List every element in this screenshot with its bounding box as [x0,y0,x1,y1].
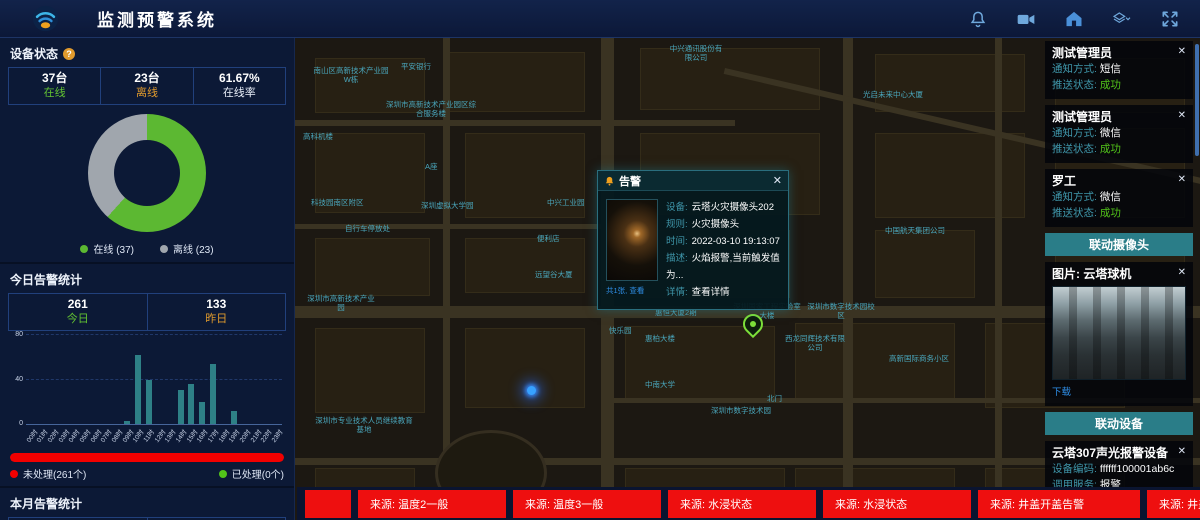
alarm-snapshot-image[interactable] [606,199,658,281]
legend-processed: 已处理(0个) [219,466,284,481]
bar-slot: 20时 [239,335,250,424]
scrollbar-thumb[interactable] [1195,44,1199,156]
hour-bar [188,384,194,424]
hour-bar [124,421,130,424]
map-label: A座 [425,162,438,171]
alarm-popup: 告警 ✕ 共1张, 查看 设备:云塔火灾摄像头202 规则:火灾摄像头 时间:2… [597,170,789,310]
video-camera-icon[interactable] [1016,8,1038,30]
alarm-source-tile[interactable]: 来源: 温度3一般 [513,490,661,518]
map-label: 远望谷大厦 [535,270,573,279]
map-label: 深圳虚拟大学园 [421,201,474,210]
alarm-source-tile[interactable]: 来源: 水浸状态 [668,490,816,518]
bar-slot: 23时 [271,335,282,424]
month-alarms-header: 本月告警统计 [8,493,286,517]
map-label: 深圳市专业技术人员继续教育基地 [315,416,413,434]
ytick-80: 80 [10,331,23,338]
close-icon[interactable]: ✕ [1178,110,1186,121]
map-label: 中国航天集团公司 [885,226,945,235]
bar-slot: 11时 [143,335,154,424]
notification-recipient: 测试管理员 [1052,110,1174,125]
bar-slot: 08时 [111,335,122,424]
today-alarms-header: 今日告警统计 [8,269,286,293]
map-block [315,328,425,413]
map-label: 深圳市数字技术园 [711,406,771,415]
alarm-snapshot-wrap: 共1张, 查看 [606,199,658,301]
notification-card: 罗工✕ 通知方式:微信 推送状态:成功 [1045,169,1193,227]
header: 监测预警系统 [0,0,1200,38]
map-road [295,224,605,229]
map-block [315,238,430,296]
bar-slot: 05时 [79,335,90,424]
map-block [465,238,585,293]
bar-slot: 09时 [122,335,133,424]
map-label: 深圳市数字技术园校区 [807,302,875,320]
layers-icon[interactable] [1112,8,1134,30]
today-alarms-stats: 261 今日 133 昨日 [8,293,286,331]
linked-devices-header[interactable]: 联动设备 [1045,412,1193,435]
map-block [875,230,975,298]
bar-slot: 06时 [90,335,101,424]
bar-slot: 03时 [58,335,69,424]
bar-slot: 10时 [133,335,144,424]
map-label: 平安银行 [401,62,431,71]
left-panel: 设备状态 ? 37台 在线 23台 离线 61.67% 在线率 [0,38,295,520]
month-alarms-title: 本月告警统计 [10,495,82,512]
device-code-row: 设备编码:ffffff100001ab6c [1052,461,1186,477]
legend-unprocessed: 未处理(261个) [10,466,86,481]
map-block [875,133,1025,218]
map-label: 北门 [767,394,782,403]
legend-online: 在线 (37) [80,241,134,256]
alarm-popup-body: 共1张, 查看 设备:云塔火灾摄像头202 规则:火灾摄像头 时间:2022-0… [598,191,788,309]
camera-card: 图片: 云塔球机✕ 下载 [1045,262,1193,406]
ytick-40: 40 [10,376,23,383]
map-label: 科技园南区附区 [311,198,364,207]
alarm-source-tile[interactable]: 来源: 水浸状态 [823,490,971,518]
linked-cameras-header[interactable]: 联动摄像头 [1045,233,1193,256]
bar-slot: 21时 [250,335,261,424]
alarm-popup-title: 告警 [619,173,769,189]
alarm-ticker: 来源: 温度2一般来源: 温度3一般来源: 水浸状态来源: 水浸状态来源: 井盖… [297,487,1200,520]
hour-bar [231,411,237,424]
map-label: 便利店 [537,234,560,243]
legend-dot-offline [160,245,168,253]
device-status-title: 设备状态 [10,45,58,62]
progress-legend: 未处理(261个) 已处理(0个) [10,466,284,481]
alarm-source-tile[interactable]: 来源: 温度2一般 [358,490,506,518]
bar-slot: 14时 [175,335,186,424]
device-donut [88,114,206,232]
notification-recipient: 罗工 [1052,174,1174,189]
alarm-popup-fields: 设备:云塔火灾摄像头202 规则:火灾摄像头 时间:2022-03-10 19:… [666,199,782,301]
map-label: 深圳市高新技术产业园区综合服务楼 [385,100,477,118]
month-alarms-section: 本月告警统计 763 1146 [0,486,294,520]
hour-bar [146,380,152,425]
notification-card: 测试管理员✕ 通知方式:短信 推送状态:成功 [1045,41,1193,99]
stat-today: 261 今日 [9,294,147,330]
notification-status-row: 推送状态:成功 [1052,205,1186,221]
stat-online-rate: 61.67% 在线率 [193,68,285,104]
stat-offline: 23台 离线 [100,68,192,104]
map-label: 自行车停放处 [345,224,390,233]
map-label: 高新国际商务小区 [889,354,949,363]
alarm-field-rule: 规则:火灾摄像头 [666,216,782,233]
app: 监测预警系统 [0,0,1200,520]
alarm-field-desc: 描述:火焰报警,当前触发值为... [666,250,782,284]
camera-snapshot-image[interactable] [1052,286,1186,380]
bar-slot: 04时 [69,335,80,424]
map-label: 中南大学 [645,380,675,389]
bar-slot: 22时 [261,335,272,424]
fullscreen-icon[interactable] [1160,8,1182,30]
map-block [465,328,585,408]
map-road [843,38,853,520]
notification-method-row: 通知方式:微信 [1052,189,1186,205]
alarm-field-time: 时间:2022-03-10 19:13:07 [666,233,782,250]
alarm-popup-close-icon[interactable]: ✕ [773,174,782,187]
hour-bar [135,355,141,424]
hour-bar [210,364,216,424]
close-icon[interactable]: ✕ [1178,446,1186,457]
bar-slot: 07时 [101,335,112,424]
map-block [875,54,1025,112]
device-status-section: 设备状态 ? 37台 在线 23台 离线 61.67% 在线率 [0,38,294,262]
help-icon[interactable]: ? [63,48,75,60]
map-label: 光启未来中心大厦 [863,90,923,99]
bar-slot: 19时 [229,335,240,424]
bar-slot: 16时 [197,335,208,424]
device-card-title: 云塔307声光报警设备 [1052,446,1174,461]
map-label: 中兴通讯股份有限公司 [667,44,725,62]
notification-recipient: 测试管理员 [1052,46,1174,61]
hour-bar-plot: 0 40 80 00时01时02时03时04时05时06时07时08时09时10… [26,335,282,425]
alarm-popup-header: 告警 ✕ [598,171,788,191]
alarm-field-device: 设备:云塔火灾摄像头202 [666,199,782,216]
device-status-header: 设备状态 ? [8,43,286,67]
map-device-dot[interactable] [527,386,536,395]
bar-slot: 00时 [26,335,37,424]
legend-dot-processed [219,470,227,478]
map-label: 中兴工业园 [547,198,585,207]
bar-slot: 17时 [207,335,218,424]
page-title: 监测预警系统 [97,6,217,31]
close-icon[interactable]: ✕ [1178,174,1186,185]
bar-slot: 15时 [186,335,197,424]
map-label: 快乐园 [609,326,632,335]
notification-status-row: 推送状态:成功 [1052,77,1186,93]
alarm-source-tile[interactable]: 来源: 井盖开盖告警 [978,490,1140,518]
download-link[interactable]: 下载 [1052,384,1071,398]
bar-slot: 13时 [165,335,176,424]
bar-slot: 02时 [47,335,58,424]
hour-bar [199,402,205,424]
notification-method-row: 通知方式:短信 [1052,61,1186,77]
view-details-link[interactable]: 查看详情 [692,287,730,298]
today-alarms-section: 今日告警统计 261 今日 133 昨日 0 40 80 [0,262,294,486]
alarm-source-tile[interactable]: 来源: 井盖开盖告警 [1147,490,1200,518]
map-label: 南山区高新技术产业园W栋 [311,66,391,84]
map-road [995,38,1002,520]
bar-slot: 01时 [37,335,48,424]
unprocessed-bar [10,453,284,462]
legend-dot-unprocessed [10,470,18,478]
alarm-snapshot-actions[interactable]: 共1张, 查看 [606,285,658,296]
alarm-bell-icon [604,175,615,187]
close-icon[interactable]: ✕ [1178,267,1186,278]
camera-card-title: 图片: 云塔球机 [1052,267,1174,282]
bell-icon[interactable] [968,8,990,30]
map-road [295,120,735,126]
device-donut-chart [8,109,286,237]
notification-card: 测试管理员✕ 通知方式:微信 推送状态:成功 [1045,105,1193,163]
bar-slot: 18时 [218,335,229,424]
close-icon[interactable]: ✕ [1178,46,1186,57]
bar-slot: 12时 [154,335,165,424]
notification-status-row: 推送状态:成功 [1052,141,1186,157]
home-icon[interactable] [1064,8,1086,30]
legend-offline: 离线 (23) [160,241,214,256]
stat-online: 37台 在线 [9,68,100,104]
hour-bar [178,390,184,424]
right-panel: 测试管理员✕ 通知方式:短信 推送状态:成功 测试管理员✕ 通知方式:微信 推送… [1042,38,1200,490]
alarm-field-detail: 详情:查看详情 [666,284,782,301]
today-alarms-title: 今日告警统计 [10,271,82,288]
map-label: 深圳市高新技术产业园 [307,294,375,312]
map-label: 西龙同辉技术有限公司 [783,334,847,352]
device-status-stats: 37台 在线 23台 离线 61.67% 在线率 [8,67,286,105]
notification-method-row: 通知方式:微信 [1052,125,1186,141]
app-logo [32,5,59,32]
map-label: 惠柏大楼 [645,334,675,343]
map-label: 高科机楼 [303,132,333,141]
ytick-0: 0 [10,420,23,427]
donut-legend: 在线 (37) 离线 (23) [8,241,286,256]
hourly-alarm-chart: 0 40 80 00时01时02时03时04时05时06时07时08时09时10… [10,335,284,451]
legend-dot-online [80,245,88,253]
stat-yesterday: 133 昨日 [147,294,286,330]
alarm-source-tile[interactable] [305,490,351,518]
processed-progress-bar [10,453,284,462]
